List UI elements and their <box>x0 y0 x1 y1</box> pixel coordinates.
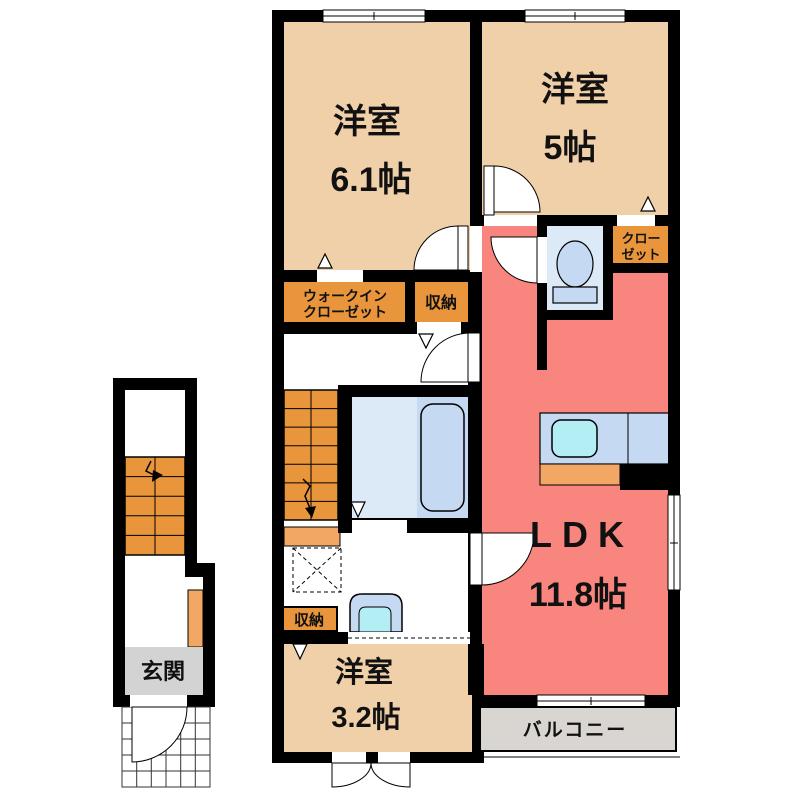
balcony-label: バルコニー <box>523 719 628 741</box>
floor-plan-svg: 洋室 6.1帖 洋室 5帖 LDK 11.8帖 洋室 3.2帖 ウォークイン ク… <box>0 0 800 800</box>
kitchen-sink-icon <box>552 420 597 457</box>
closet-label-line2: ゼット <box>621 247 660 262</box>
bathroom-floor <box>352 397 417 518</box>
kitchen-counter <box>540 413 672 490</box>
room-5-size: 5帖 <box>544 129 597 167</box>
annex-stairs <box>125 457 185 555</box>
room-6-1-name: 洋室 <box>333 102 401 141</box>
room-6-1-door-leaf <box>458 226 468 270</box>
room-3-2-name: 洋室 <box>335 655 393 689</box>
window-right-wall <box>668 495 680 590</box>
bathtub-area <box>417 397 470 518</box>
french-door-left-swing-icon <box>332 763 371 787</box>
window-top-right <box>525 10 625 22</box>
storage-bottom-label: 収納 <box>294 611 324 629</box>
wic-label-line2: クローゼット <box>303 304 387 320</box>
washroom-door-leaf <box>470 533 482 585</box>
under-stairs-cabinet <box>284 527 340 546</box>
wic-label-line1: ウォークイン <box>303 288 387 304</box>
room-5-name: 洋室 <box>541 70 609 109</box>
washing-machine-icon <box>293 548 341 592</box>
room-3-2-size: 3.2帖 <box>331 701 400 734</box>
floor-plan: 洋室 6.1帖 洋室 5帖 LDK 11.8帖 洋室 3.2帖 ウォークイン ク… <box>0 0 800 800</box>
closet-label-line1: クロー <box>621 231 660 246</box>
main-stairs <box>284 390 340 546</box>
storage-top-label: 収納 <box>425 293 457 312</box>
french-door-right-swing-icon <box>371 763 410 787</box>
ldk-size: 11.8帖 <box>529 576 627 614</box>
window-top-left <box>323 10 425 22</box>
window-balcony <box>537 695 645 707</box>
storage-top-door-marker-icon <box>419 334 433 348</box>
vanity-sink-icon <box>350 594 402 632</box>
room-6-1-size: 6.1帖 <box>330 161 411 199</box>
shoe-cabinet <box>188 590 203 647</box>
room-5-door-leaf <box>484 166 494 215</box>
kitchen-base <box>540 464 620 485</box>
entrance-label: 玄関 <box>141 659 185 684</box>
hallway-door-leaf <box>468 333 480 382</box>
ldk-name: LDK <box>530 514 634 555</box>
entrance-door-opening <box>130 695 187 707</box>
entrance-annex <box>113 378 215 787</box>
